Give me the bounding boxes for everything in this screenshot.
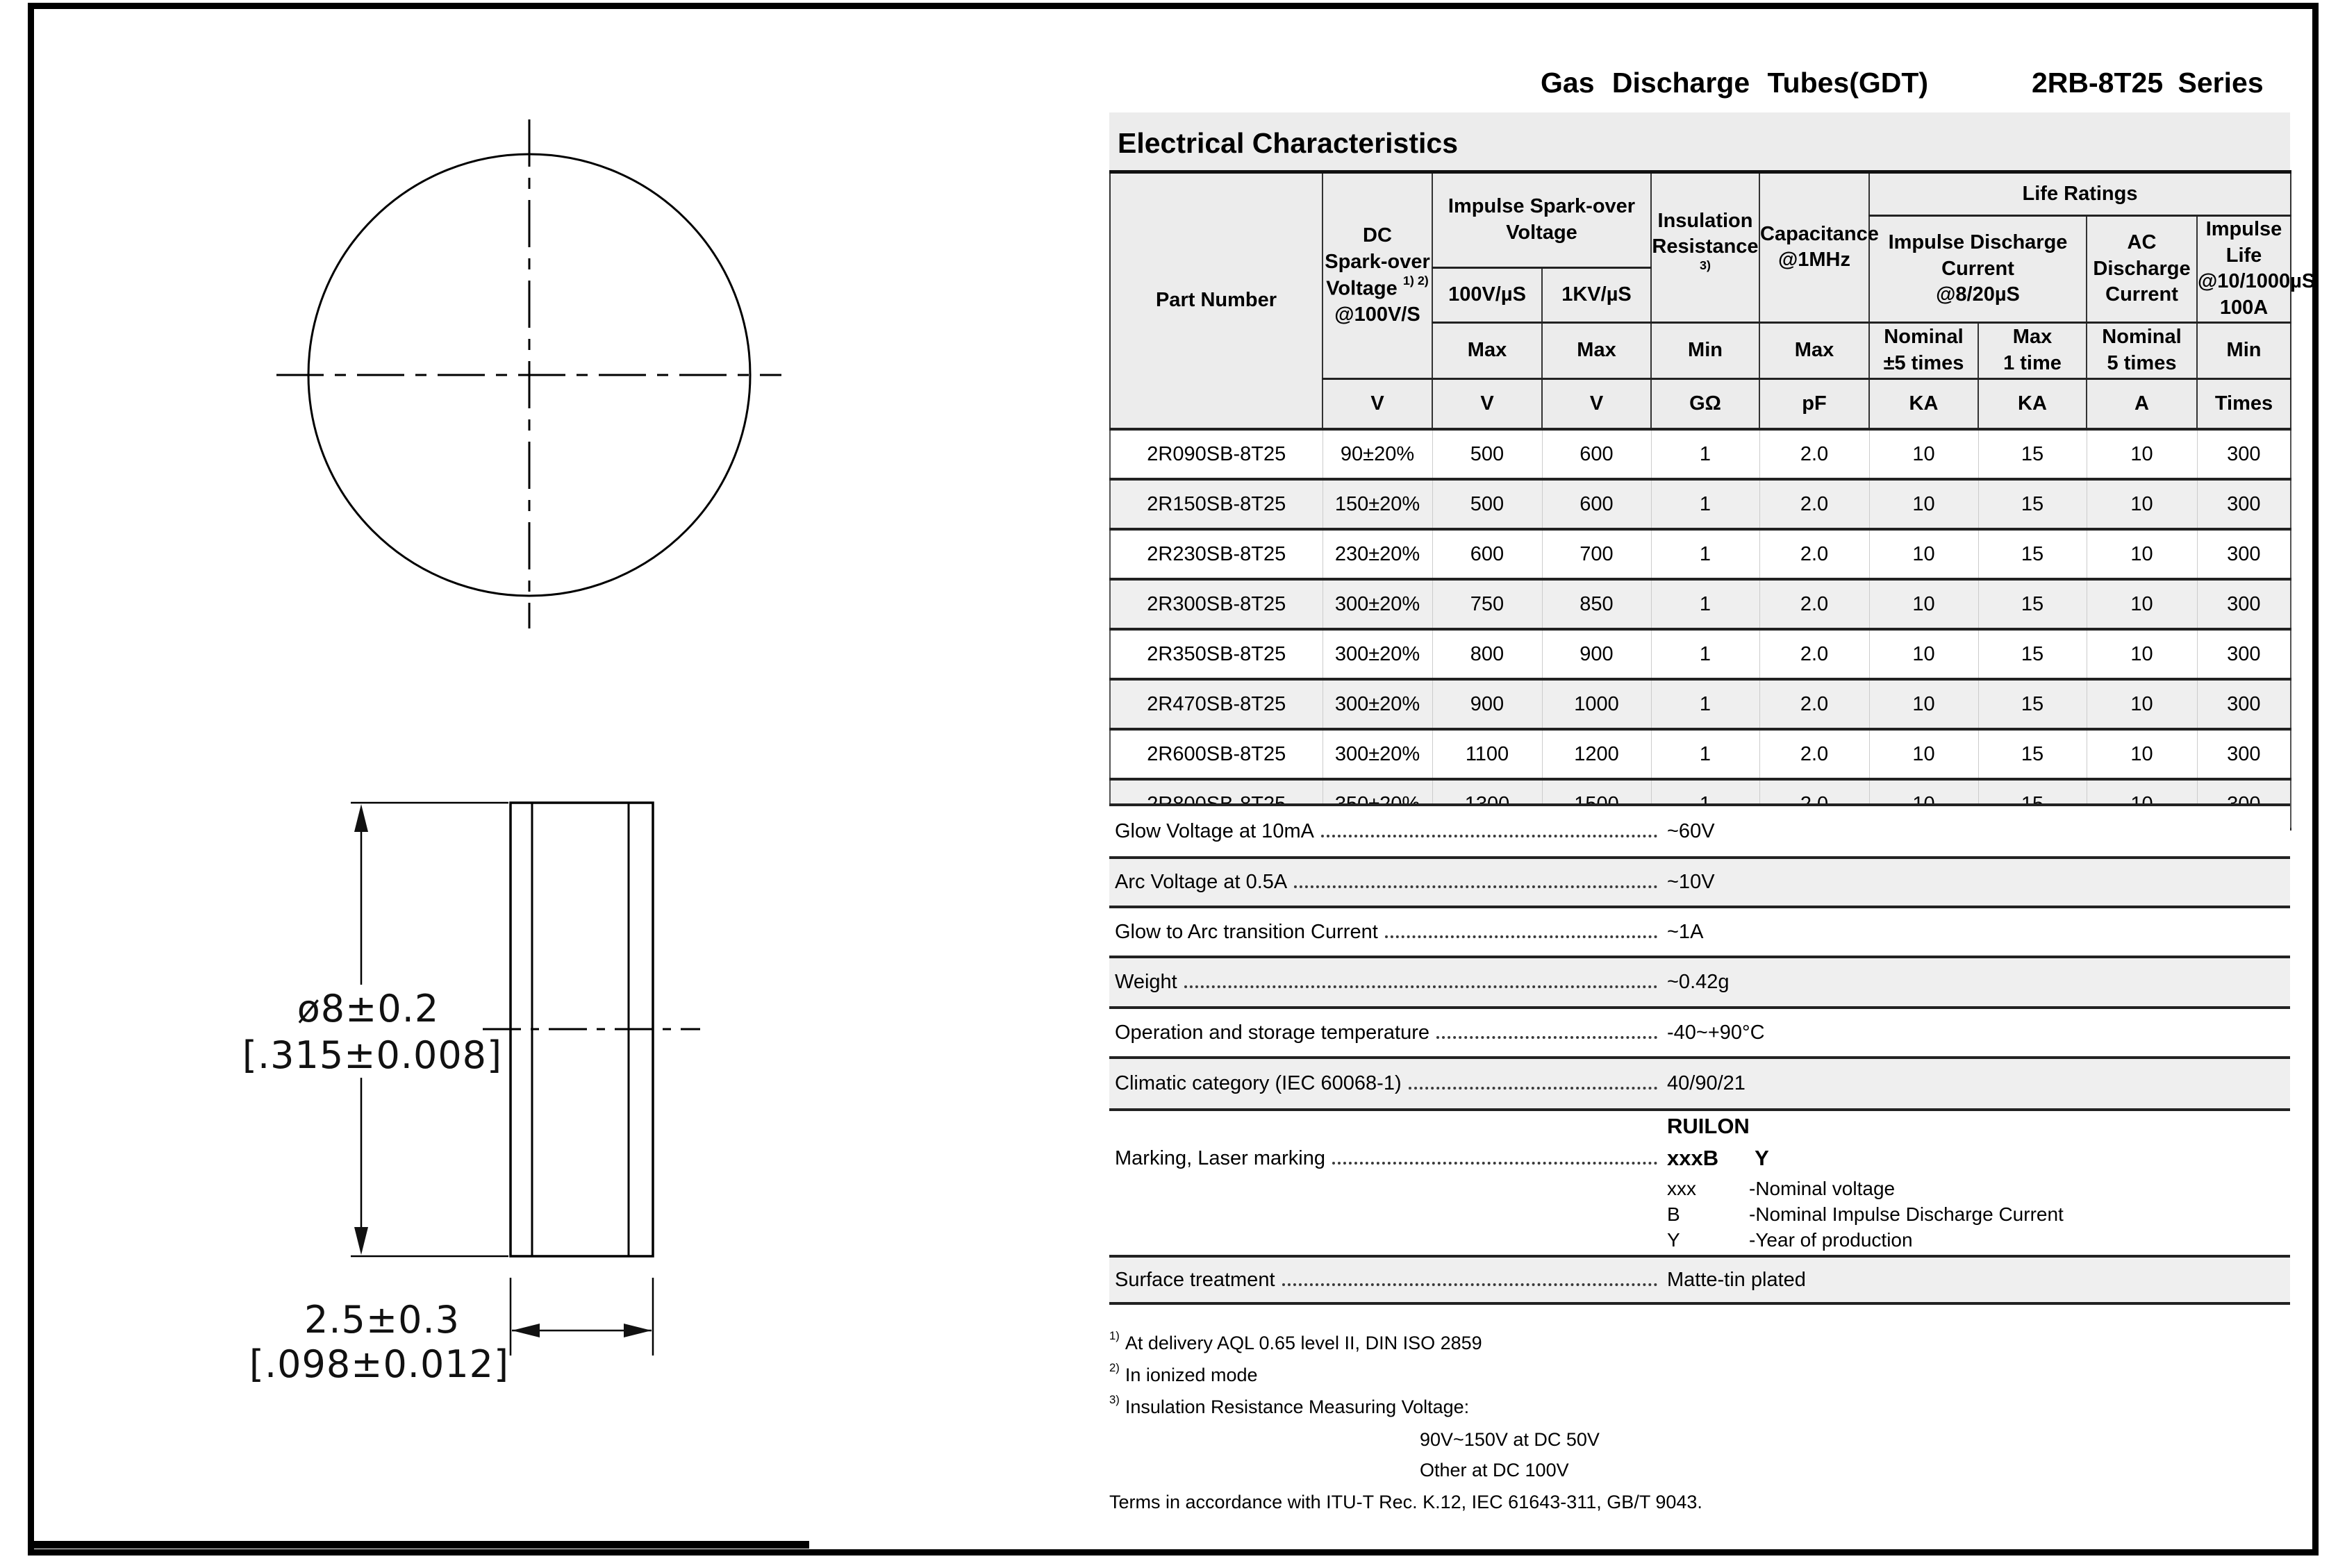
page-title-product: Gas Discharge Tubes(GDT) (1541, 67, 1928, 99)
cell-capacitance: 2.0 (1759, 679, 1869, 729)
dotted-leader (1321, 835, 1657, 837)
property-value: Matte-tin plated (1667, 1256, 2290, 1303)
impulse-life-line1: Impulse Life (2206, 218, 2282, 267)
insulation-line2: Resistance (1652, 235, 1758, 258)
marking-desc: -Nominal Impulse Discharge Current (1749, 1203, 2064, 1226)
insulation-footnote-ref: 3) (1700, 258, 1711, 272)
cell-max-1: 15 (1978, 679, 2087, 729)
col-header-part-number: Part Number (1110, 172, 1323, 430)
cell-max-1: 15 (1978, 429, 2087, 479)
cell-life: 300 (2197, 579, 2291, 629)
dotted-leader (1282, 1283, 1658, 1286)
section-title: Electrical Characteristics (1109, 112, 2290, 174)
arrowhead-right (624, 1324, 652, 1337)
cell-capacitance: 2.0 (1759, 729, 1869, 779)
cell-life: 300 (2197, 729, 2291, 779)
property-value: ~1A (1667, 907, 2290, 957)
table-row: 2R300SB-8T25 300±20% 750 850 1 2.0 10 15… (1110, 579, 2291, 629)
marking-def: B -Nominal Impulse Discharge Current (1667, 1203, 2290, 1226)
cell-max-1: 15 (1978, 529, 2087, 579)
property-row: Arc Voltage at 0.5A ~10V (1109, 858, 2290, 907)
section-header-bar: Electrical Characteristics (1109, 112, 2290, 174)
unit-header: V (1323, 378, 1432, 429)
cell-insulation: 1 (1651, 629, 1759, 679)
cell-insulation: 1 (1651, 729, 1759, 779)
dc-line3: Voltage (1326, 277, 1398, 299)
property-value: ~0.42g (1667, 957, 2290, 1008)
cell-part-number: 2R300SB-8T25 (1110, 579, 1323, 629)
page-title-series: 2RB-8T25 Series (2032, 67, 2264, 99)
property-label: Glow Voltage at 10mA (1115, 820, 1314, 843)
cell-1kv: 900 (1542, 629, 1651, 679)
footnote-2-marker: 2) (1109, 1361, 1120, 1374)
cell-capacitance: 2.0 (1759, 629, 1869, 679)
property-label: Arc Voltage at 0.5A (1115, 871, 1287, 894)
property-label: Operation and storage temperature (1115, 1021, 1429, 1044)
marking-brand: RUILON (1667, 1114, 2290, 1139)
cell-capacitance: 2.0 (1759, 579, 1869, 629)
cell-part-number: 2R350SB-8T25 (1110, 629, 1323, 679)
cell-dc-voltage: 300±20% (1323, 729, 1432, 779)
property-row: Operation and storage temperature -40~+9… (1109, 1008, 2290, 1058)
cell-ac: 10 (2087, 429, 2197, 479)
cell-insulation: 1 (1651, 529, 1759, 579)
property-label: Marking, Laser marking (1115, 1147, 1325, 1170)
capacitance-line1: Capacitance (1760, 223, 1879, 245)
property-label: Weight (1115, 971, 1177, 994)
cell-1kv: 1000 (1542, 679, 1651, 729)
cell-100v: 1100 (1432, 729, 1542, 779)
marking-def: Y -Year of production (1667, 1229, 2290, 1251)
property-row: Glow to Arc transition Current ~1A (1109, 907, 2290, 957)
cell-nominal-5: 10 (1869, 429, 1978, 479)
cell-dc-voltage: 300±20% (1323, 679, 1432, 729)
cell-insulation: 1 (1651, 479, 1759, 529)
datasheet-page: ø8±0.2 [.315±0.008] 2.5±0.3 [.098±0.012]… (0, 0, 2338, 1568)
property-row: Surface treatment Matte-tin plated (1109, 1256, 2290, 1303)
cell-ac: 10 (2087, 629, 2197, 679)
property-value: -40~+90°C (1667, 1008, 2290, 1058)
dimension-label-diameter-inch: [.315±0.008] (193, 1033, 552, 1077)
cell-100v: 600 (1432, 529, 1542, 579)
capacitance-line2: @1MHz (1778, 249, 1850, 271)
property-label: Climatic category (IEC 60068-1) (1115, 1072, 1402, 1095)
col-header-life-ratings: Life Ratings (1869, 172, 2291, 216)
side-view-drawing (483, 803, 700, 1256)
dc-line4: @100V/S (1334, 303, 1420, 326)
cell-100v: 800 (1432, 629, 1542, 679)
property-label: Surface treatment (1115, 1269, 1275, 1292)
unit-header: V (1542, 378, 1651, 429)
unit-header: GΩ (1651, 378, 1759, 429)
cell-life: 300 (2197, 529, 2291, 579)
limit-header: Nominal 5 times (2087, 322, 2197, 378)
limit-header: Min (2197, 322, 2291, 378)
footnote-1: 1)At delivery AQL 0.65 level II, DIN ISO… (1109, 1332, 1482, 1354)
dc-footnote-ref: 1) 2) (1403, 274, 1429, 287)
marking-def: xxx -Nominal voltage (1667, 1178, 2290, 1200)
footnote-1-text: At delivery AQL 0.65 level II, DIN ISO 2… (1125, 1333, 1482, 1353)
cell-insulation: 1 (1651, 579, 1759, 629)
footnote-1-marker: 1) (1109, 1329, 1120, 1342)
footnote-3-text: Insulation Resistance Measuring Voltage: (1125, 1396, 1469, 1417)
dc-line1: DC (1363, 224, 1392, 247)
property-value: ~60V (1667, 805, 2290, 858)
cell-capacitance: 2.0 (1759, 479, 1869, 529)
table-row: 2R230SB-8T25 230±20% 600 700 1 2.0 10 15… (1110, 529, 2291, 579)
marking-desc: -Year of production (1749, 1229, 1913, 1251)
col-header-impulse-life: Impulse Life @10/1000µS 100A (2197, 216, 2291, 323)
unit-header: KA (1869, 378, 1978, 429)
footnote-3-sub2: Other at DC 100V (1420, 1460, 1569, 1481)
idc-line1: Impulse Discharge (1889, 231, 2068, 253)
cell-capacitance: 2.0 (1759, 429, 1869, 479)
property-label: Glow to Arc transition Current (1115, 921, 1378, 944)
limit-header: Max (1542, 322, 1651, 378)
cell-max-1: 15 (1978, 579, 2087, 629)
cell-1kv: 1200 (1542, 729, 1651, 779)
impulse-life-line2: @10/1000µS (2198, 270, 2315, 292)
cell-max-1: 15 (1978, 729, 2087, 779)
cell-nominal-5: 10 (1869, 729, 1978, 779)
cell-ac: 10 (2087, 679, 2197, 729)
col-header-1kv-us: 1KV/µS (1542, 267, 1651, 322)
cell-1kv: 600 (1542, 429, 1651, 479)
dotted-leader (1409, 1087, 1657, 1090)
dotted-leader (1385, 935, 1657, 938)
cell-dc-voltage: 300±20% (1323, 579, 1432, 629)
col-header-insulation-resistance: Insulation Resistance 3) (1651, 172, 1759, 323)
marking-value: RUILON xxxB Y xxx -Nominal voltage B -No… (1667, 1110, 2290, 1256)
col-header-impulse-sparkover: Impulse Spark-over Voltage (1432, 172, 1651, 268)
ac-line2: Discharge (2093, 258, 2190, 280)
arrowhead-down (354, 1227, 368, 1255)
property-value: 40/90/21 (1667, 1058, 2290, 1110)
cell-dc-voltage: 300±20% (1323, 629, 1432, 679)
front-view-drawing (276, 119, 781, 628)
dotted-leader (1436, 1036, 1657, 1039)
col-header-capacitance: Capacitance @1MHz (1759, 172, 1869, 323)
limit-header: Min (1651, 322, 1759, 378)
arrowhead-up (354, 804, 368, 832)
property-row-marking: Marking, Laser marking RUILON xxxB Y xxx… (1109, 1110, 2290, 1256)
cell-nominal-5: 10 (1869, 679, 1978, 729)
cell-1kv: 850 (1542, 579, 1651, 629)
terms-note: Terms in accordance with ITU-T Rec. K.12… (1109, 1492, 1702, 1513)
insulation-line1: Insulation (1658, 210, 1753, 232)
cell-life: 300 (2197, 679, 2291, 729)
limit-header: Max (1432, 322, 1542, 378)
cell-life: 300 (2197, 479, 2291, 529)
cell-100v: 900 (1432, 679, 1542, 729)
footnote-3-marker: 3) (1109, 1393, 1120, 1406)
cell-nominal-5: 10 (1869, 629, 1978, 679)
limit-header: Max 1 time (1978, 322, 2087, 378)
cell-dc-voltage: 230±20% (1323, 529, 1432, 579)
marking-desc: -Nominal voltage (1749, 1178, 1895, 1200)
col-header-dc-sparkover: DC Spark-over Voltage 1) 2) @100V/S (1323, 172, 1432, 379)
unit-header: A (2087, 378, 2197, 429)
unit-header: pF (1759, 378, 1869, 429)
dotted-leader (1332, 1162, 1657, 1165)
footnote-3-sub1: 90V~150V at DC 50V (1420, 1429, 1600, 1451)
electrical-characteristics-table: Part Number DC Spark-over Voltage 1) 2) … (1109, 170, 2291, 831)
property-row: Climatic category (IEC 60068-1) 40/90/21 (1109, 1058, 2290, 1110)
unit-header: KA (1978, 378, 2087, 429)
cell-life: 300 (2197, 629, 2291, 679)
gdt-outline-drawing (0, 0, 1042, 1568)
footnote-2-text: In ionized mode (1125, 1365, 1258, 1385)
col-header-100v-us: 100V/µS (1432, 267, 1542, 322)
cell-part-number: 2R090SB-8T25 (1110, 429, 1323, 479)
cell-ac: 10 (2087, 529, 2197, 579)
dotted-leader (1184, 985, 1657, 988)
cell-part-number: 2R600SB-8T25 (1110, 729, 1323, 779)
cell-max-1: 15 (1978, 629, 2087, 679)
impulse-life-line3: 100A (2220, 297, 2268, 319)
unit-header: Times (2197, 378, 2291, 429)
cell-nominal-5: 10 (1869, 479, 1978, 529)
cell-1kv: 700 (1542, 529, 1651, 579)
table-row: 2R470SB-8T25 300±20% 900 1000 1 2.0 10 1… (1110, 679, 2291, 729)
footnote-3: 3)Insulation Resistance Measuring Voltag… (1109, 1396, 1469, 1418)
ac-line1: AC (2128, 231, 2157, 253)
marking-term: xxx (1667, 1178, 1749, 1200)
cell-dc-voltage: 150±20% (1323, 479, 1432, 529)
table-row: 2R150SB-8T25 150±20% 500 600 1 2.0 10 15… (1110, 479, 2291, 529)
cell-100v: 750 (1432, 579, 1542, 629)
unit-header: V (1432, 378, 1542, 429)
dotted-leader (1294, 885, 1657, 888)
table-row: 2R350SB-8T25 300±20% 800 900 1 2.0 10 15… (1110, 629, 2291, 679)
dimension-label-diameter-mm: ø8±0.2 (229, 987, 507, 1031)
ac-line3: Current (2105, 283, 2178, 306)
cell-ac: 10 (2087, 729, 2197, 779)
dimension-label-thickness-inch: [.098±0.012] (200, 1342, 558, 1386)
property-row: Weight ~0.42g (1109, 957, 2290, 1008)
cell-insulation: 1 (1651, 429, 1759, 479)
marking-term: Y (1667, 1229, 1749, 1251)
cell-100v: 500 (1432, 429, 1542, 479)
cell-insulation: 1 (1651, 679, 1759, 729)
table-row: 2R090SB-8T25 90±20% 500 600 1 2.0 10 15 … (1110, 429, 2291, 479)
footnote-2: 2)In ionized mode (1109, 1364, 1258, 1386)
cell-life: 300 (2197, 429, 2291, 479)
table-row: 2R600SB-8T25 300±20% 1100 1200 1 2.0 10 … (1110, 729, 2291, 779)
col-header-impulse-discharge-current: Impulse Discharge Current @8/20µS (1869, 216, 2087, 323)
property-row: Glow Voltage at 10mA ~60V (1109, 805, 2290, 858)
limit-header: Nominal ±5 times (1869, 322, 1978, 378)
cell-ac: 10 (2087, 579, 2197, 629)
col-header-ac-discharge-current: AC Discharge Current (2087, 216, 2197, 323)
marking-code: xxxB Y (1667, 1146, 2290, 1171)
dimension-label-thickness-mm: 2.5±0.3 (243, 1298, 521, 1342)
cell-nominal-5: 10 (1869, 529, 1978, 579)
cell-capacitance: 2.0 (1759, 529, 1869, 579)
cell-part-number: 2R470SB-8T25 (1110, 679, 1323, 729)
cell-dc-voltage: 90±20% (1323, 429, 1432, 479)
limit-header: Max (1759, 322, 1869, 378)
idc-line3: @8/20µS (1936, 283, 2020, 306)
cell-max-1: 15 (1978, 479, 2087, 529)
dc-line2: Spark-over (1325, 251, 1430, 273)
marking-term: B (1667, 1203, 1749, 1226)
general-properties-table: Glow Voltage at 10mA ~60V Arc Voltage at… (1109, 803, 2290, 1305)
cell-nominal-5: 10 (1869, 579, 1978, 629)
cell-part-number: 2R150SB-8T25 (1110, 479, 1323, 529)
cell-ac: 10 (2087, 479, 2197, 529)
cell-100v: 500 (1432, 479, 1542, 529)
cell-part-number: 2R230SB-8T25 (1110, 529, 1323, 579)
cell-1kv: 600 (1542, 479, 1651, 529)
idc-line2: Current (1941, 258, 2014, 280)
property-value: ~10V (1667, 858, 2290, 907)
